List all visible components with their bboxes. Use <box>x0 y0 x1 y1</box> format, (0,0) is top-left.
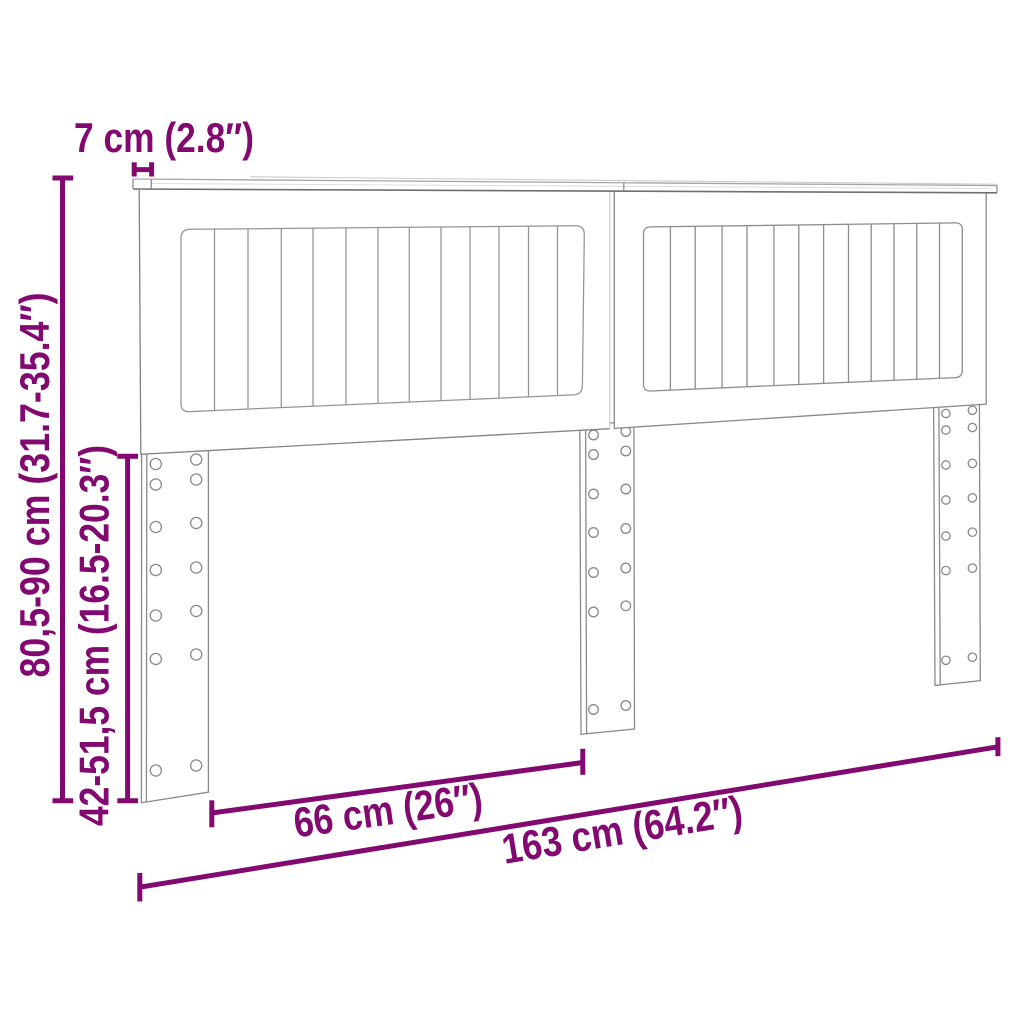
svg-text:80,5-90 cm (31.7-35.4″): 80,5-90 cm (31.7-35.4″) <box>11 293 58 678</box>
svg-text:7 cm (2.8″): 7 cm (2.8″) <box>74 114 254 161</box>
svg-text:42-51,5 cm (16.5-20.3″): 42-51,5 cm (16.5-20.3″) <box>70 445 117 826</box>
